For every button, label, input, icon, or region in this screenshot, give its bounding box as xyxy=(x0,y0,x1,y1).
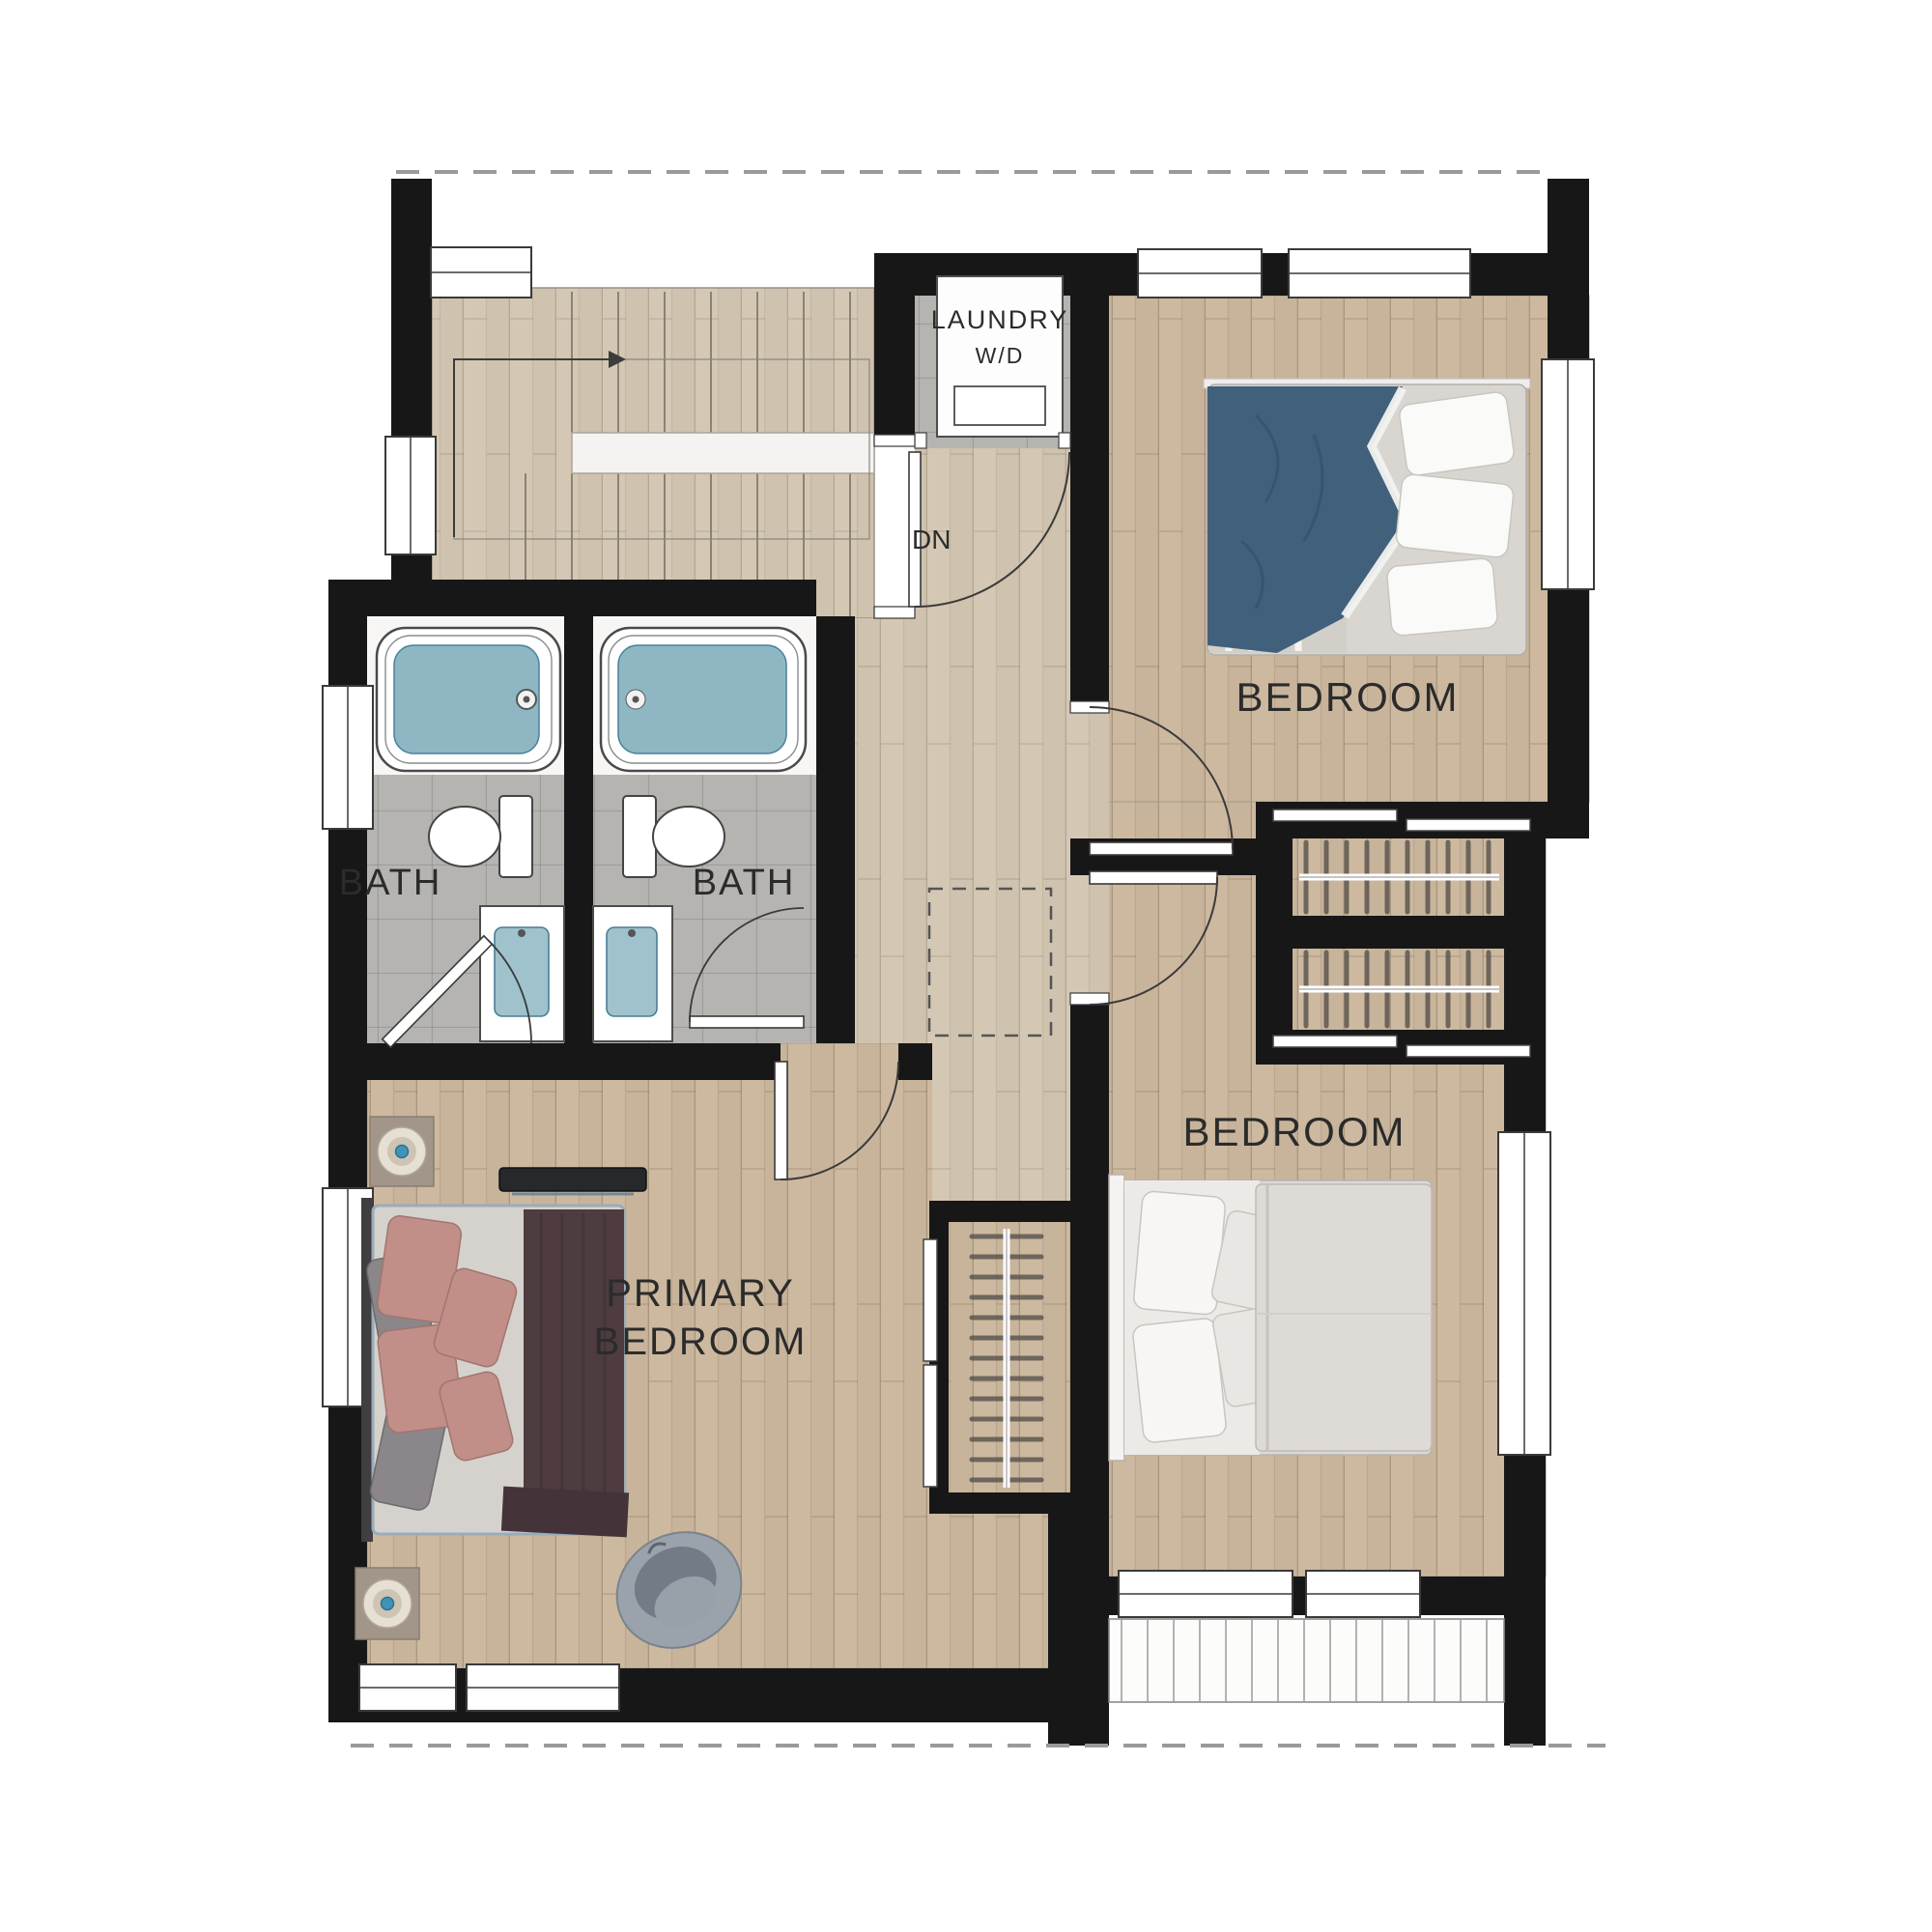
wall-closet2-bottom xyxy=(929,1492,1109,1514)
toilet-left-tank xyxy=(499,796,532,877)
primary-bed xyxy=(361,1198,629,1542)
nightstand-bottom xyxy=(355,1568,419,1639)
wall-bath-divider xyxy=(564,616,593,1043)
wall-closet2-right xyxy=(1070,1201,1109,1514)
label-primary-line1: PRIMARY xyxy=(606,1272,795,1315)
label-bath-left: BATH xyxy=(339,863,442,903)
closet-slider-bottom-b xyxy=(1406,1045,1530,1057)
lamp-top xyxy=(396,1146,409,1158)
label-laundry: LAUNDRY xyxy=(931,305,1069,334)
laundry-jamb-left xyxy=(915,433,926,448)
stair-landing xyxy=(572,433,874,473)
primary-blanket xyxy=(524,1209,624,1530)
door-primary-leaf xyxy=(775,1062,787,1179)
label-washer-dryer: W/D xyxy=(976,343,1025,368)
wall-connector xyxy=(1048,1514,1109,1746)
tv-wall-mounted xyxy=(499,1168,646,1194)
window-bedroom1-right xyxy=(1542,359,1594,589)
lamp-bottom xyxy=(382,1598,394,1610)
wall-bath-right xyxy=(816,616,855,1043)
wall-closet-left xyxy=(1256,838,1293,1030)
wall-bath-top xyxy=(328,580,816,616)
bed2-duvet xyxy=(1256,1184,1432,1451)
window-bedroom2-bottom-a xyxy=(1119,1571,1293,1617)
closet-slider-bottom-a xyxy=(1273,1036,1397,1047)
window-primary-bottom-a xyxy=(359,1664,456,1711)
window-bedroom1-top-b xyxy=(1289,249,1470,298)
label-bath-right: BATH xyxy=(693,863,796,903)
closet-slider-top-b xyxy=(1406,819,1530,831)
closet-slider-top-a xyxy=(1273,810,1397,821)
window-bedroom2-bottom-b xyxy=(1306,1571,1420,1617)
window-stair-top xyxy=(431,247,531,298)
faucet-left xyxy=(518,929,526,937)
door-bath-right-leaf xyxy=(690,1016,804,1028)
floor-hall-corridor xyxy=(932,1043,1070,1201)
closet-primary-slider-b xyxy=(923,1365,937,1487)
wall-closet2-top xyxy=(929,1201,1109,1222)
toilet-left-bowl xyxy=(429,807,500,867)
wall-hall-bedroom2 xyxy=(1070,1005,1109,1201)
wall-primary-top-a xyxy=(328,1043,781,1080)
primary-blanket-fold xyxy=(501,1487,629,1538)
label-bedroom-bottom: BEDROOM xyxy=(1182,1109,1406,1154)
faucet-right xyxy=(628,929,636,937)
window-stair-left xyxy=(385,437,436,554)
window-primary-bottom-b xyxy=(467,1664,619,1711)
toilet-right-tank xyxy=(623,796,656,877)
label-bedroom-top: BEDROOM xyxy=(1236,674,1459,720)
bed-top-right xyxy=(1204,379,1530,655)
tub-right-drain-dot xyxy=(633,696,639,703)
window-bedroom1-top-a xyxy=(1138,249,1262,298)
nightstand-top xyxy=(370,1117,434,1186)
wall-primary-top-b xyxy=(898,1043,932,1080)
label-primary-line2: BEDROOM xyxy=(594,1321,808,1363)
wall-stair-laundry xyxy=(874,296,915,446)
door-bedroom1-leaf xyxy=(1090,842,1233,855)
bed-bottom-right xyxy=(1109,1175,1432,1461)
wall-bedroom1-left xyxy=(1070,296,1109,713)
floor-plan-canvas: LAUNDRY W/D DN BEDROOM BEDROOM BATH BATH… xyxy=(0,0,1932,1932)
wall-closet-divider xyxy=(1293,916,1504,949)
deck-railing xyxy=(1109,1619,1504,1702)
door-bedroom2-leaf xyxy=(1090,871,1217,884)
window-bedroom2-right xyxy=(1498,1132,1550,1455)
sink-left xyxy=(495,927,549,1016)
window-bath-left xyxy=(323,686,373,829)
toilet-right-bowl xyxy=(653,807,724,867)
tub-left-drain-dot xyxy=(524,696,530,703)
bed1-pillows xyxy=(1386,391,1516,637)
label-down: DN xyxy=(912,525,951,554)
washer-dryer-drawer xyxy=(954,386,1045,425)
bed2-headboard xyxy=(1109,1175,1124,1461)
laundry-jamb-right xyxy=(1059,433,1070,448)
closet-primary-slider-a xyxy=(923,1239,937,1361)
sink-right xyxy=(607,927,657,1016)
